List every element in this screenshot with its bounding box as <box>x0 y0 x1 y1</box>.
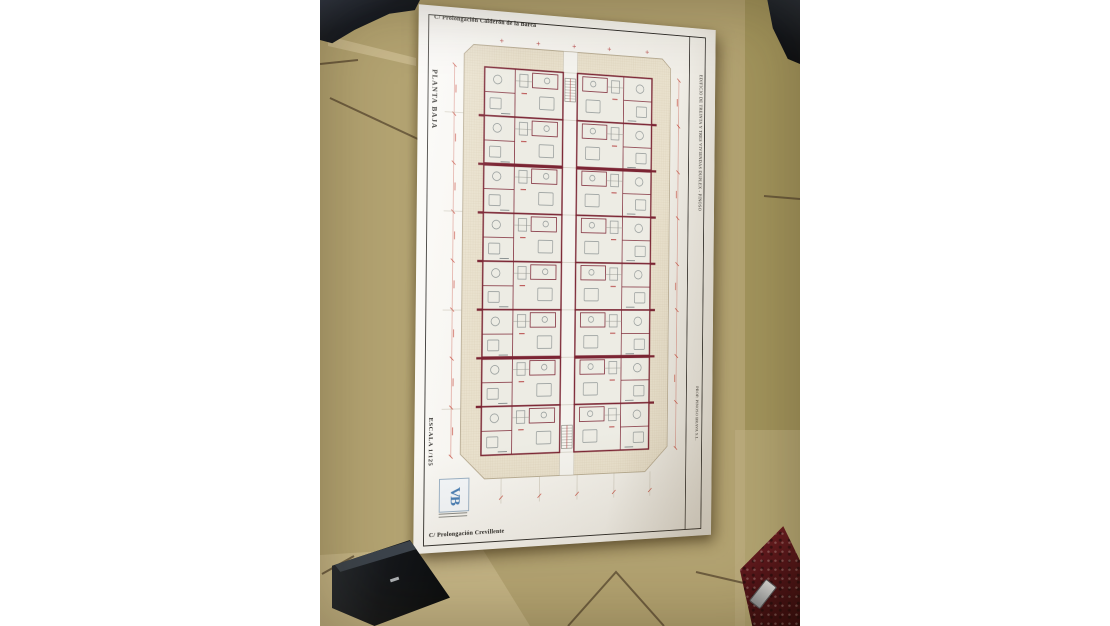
apartment-unit <box>484 115 563 167</box>
staircase-top <box>565 78 576 102</box>
red-tool-metal-clip <box>749 579 777 610</box>
plan-sheet: C/ Prolongación Calderón de la Barca PLA… <box>413 4 716 554</box>
apartment-unit <box>575 263 650 310</box>
apartment-unit <box>481 357 560 407</box>
scale-label: ESCALA 1/125 <box>427 418 434 467</box>
staircase-bottom <box>561 425 572 448</box>
promoter-label: PROP. PINOSO BRAVA S.L. <box>695 386 700 441</box>
apartment-unit <box>481 405 560 456</box>
building-right-column <box>574 73 652 451</box>
floor-plan-drawing <box>441 32 688 520</box>
apartment-unit <box>483 164 562 215</box>
apartment-unit <box>574 356 649 404</box>
apartment-unit <box>577 121 652 172</box>
apartment-unit <box>482 261 561 310</box>
apartment-unit <box>576 215 651 263</box>
building-left-column <box>481 67 563 456</box>
page-background: C/ Prolongación Calderón de la Barca PLA… <box>0 0 1110 626</box>
floor-label: PLANTA BAJA <box>430 69 438 129</box>
apartment-unit <box>574 403 649 452</box>
apartment-unit <box>482 310 561 359</box>
apartment-unit <box>483 213 562 263</box>
apartment-unit <box>575 310 650 357</box>
apartment-unit <box>576 168 651 218</box>
apartment-unit <box>484 67 563 120</box>
floor-plan-photo: C/ Prolongación Calderón de la Barca PLA… <box>320 0 800 626</box>
black-device-logo-mark <box>390 577 399 582</box>
apartment-unit <box>577 73 652 125</box>
